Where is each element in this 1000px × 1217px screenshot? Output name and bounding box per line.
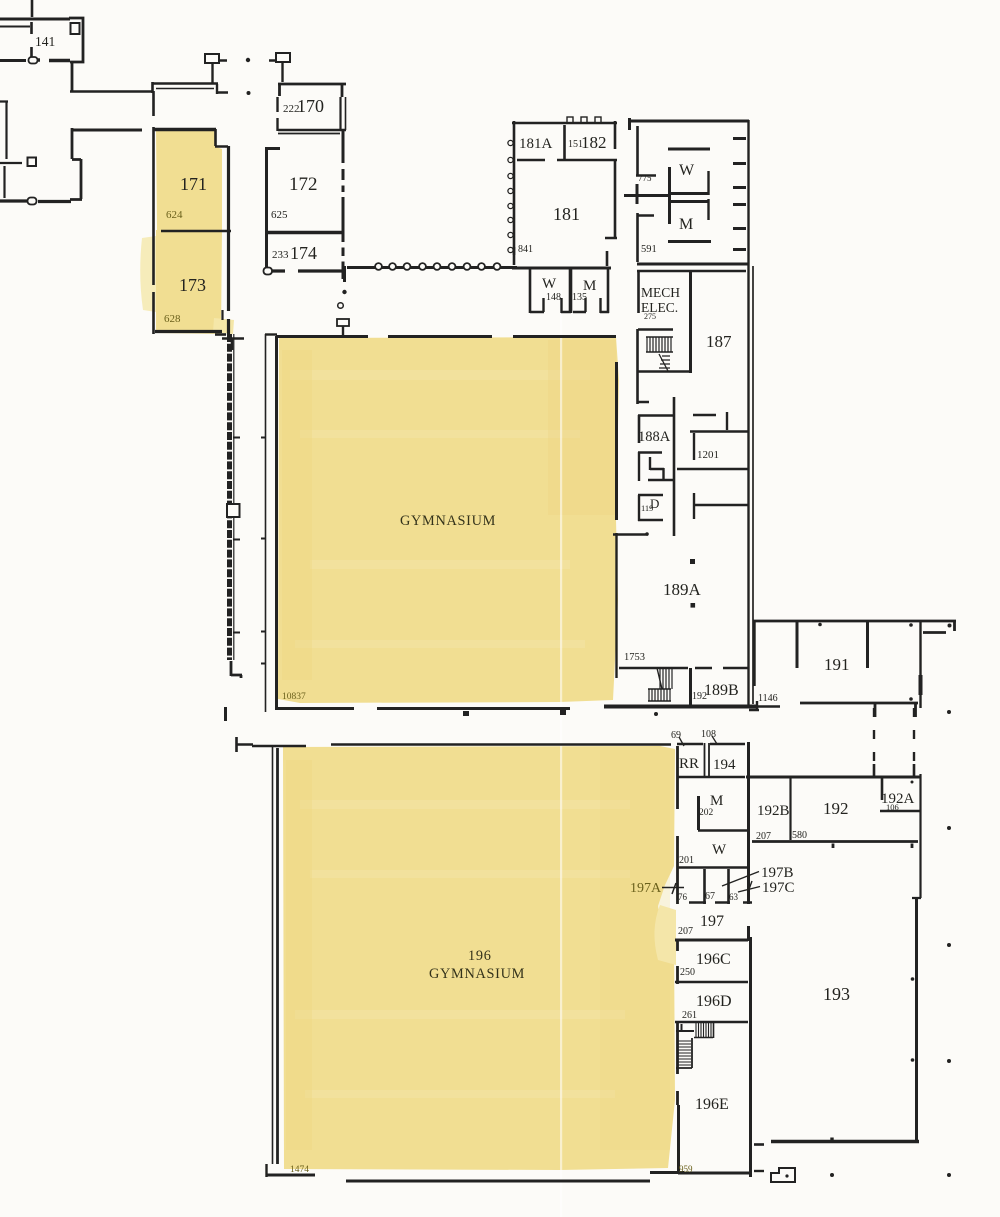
svg-text:1474: 1474 [290,1165,309,1175]
svg-text:RR: RR [679,756,699,772]
svg-text:189B: 189B [704,682,739,699]
svg-text:141: 141 [35,34,55,49]
svg-text:207: 207 [756,831,771,842]
svg-text:1146: 1146 [758,693,778,704]
svg-text:GYMNASIUM: GYMNASIUM [400,513,496,529]
svg-text:10837: 10837 [282,692,306,702]
svg-text:181: 181 [553,204,580,224]
svg-text:171: 171 [180,174,207,194]
svg-text:775: 775 [638,173,652,183]
svg-text:M: M [710,793,723,809]
svg-text:M: M [679,216,693,233]
svg-text:194: 194 [713,757,736,773]
svg-text:1753: 1753 [624,652,645,663]
svg-text:W: W [542,276,557,292]
svg-text:197B: 197B [761,865,794,881]
svg-text:173: 173 [179,275,206,295]
svg-text:197C: 197C [762,880,795,896]
svg-text:189A: 189A [663,580,702,599]
svg-text:193: 193 [823,984,850,1004]
svg-text:135: 135 [572,292,587,303]
svg-text:W: W [712,842,727,858]
svg-text:108: 108 [701,729,716,740]
svg-text:196: 196 [468,948,492,964]
svg-text:MECH: MECH [641,285,680,300]
svg-text:192: 192 [823,799,849,818]
svg-text:196C: 196C [696,951,731,968]
svg-text:624: 624 [166,209,183,221]
svg-text:182: 182 [581,133,607,152]
svg-text:207: 207 [678,926,693,937]
svg-text:628: 628 [164,313,181,325]
svg-text:196E: 196E [695,1096,729,1113]
svg-text:1201: 1201 [697,449,719,461]
svg-text:174: 174 [290,243,317,263]
svg-text:201: 201 [679,855,694,866]
svg-text:GYMNASIUM: GYMNASIUM [429,966,525,982]
svg-text:191: 191 [824,655,850,674]
svg-text:148: 148 [546,292,561,303]
svg-text:119: 119 [641,503,653,513]
svg-text:197: 197 [700,913,724,930]
svg-text:187: 187 [706,332,732,351]
svg-text:250: 250 [680,967,695,978]
svg-text:625: 625 [271,209,288,221]
svg-text:170: 170 [297,96,324,116]
svg-text:261: 261 [682,1010,697,1021]
svg-text:69: 69 [671,730,681,741]
svg-text:192B: 192B [757,803,790,819]
svg-text:106: 106 [886,802,899,812]
svg-text:591: 591 [641,244,657,255]
svg-text:275: 275 [644,312,656,321]
svg-text:841: 841 [518,244,533,255]
svg-text:959: 959 [679,1164,693,1174]
svg-text:188A: 188A [638,429,671,445]
svg-text:W: W [679,162,695,179]
svg-text:580: 580 [792,830,807,841]
svg-text:197A: 197A [630,881,662,896]
svg-text:63: 63 [729,892,739,902]
svg-text:76: 76 [678,892,688,902]
svg-text:172: 172 [289,174,318,195]
svg-text:233: 233 [272,249,289,261]
svg-text:202: 202 [699,808,714,818]
svg-text:181A: 181A [519,136,553,152]
svg-text:196D: 196D [696,993,732,1010]
svg-text:67: 67 [705,891,715,902]
